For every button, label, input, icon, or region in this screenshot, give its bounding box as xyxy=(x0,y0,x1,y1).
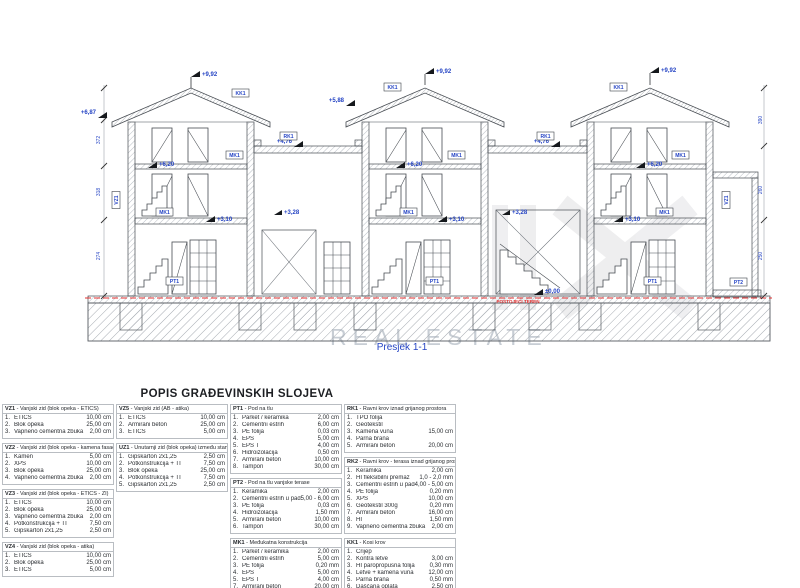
svg-text:+3,10: +3,10 xyxy=(625,217,641,223)
legend-row: 3.PE folija0,20 mm xyxy=(233,563,339,570)
tag-mk1-attic-1: MK1 xyxy=(226,151,243,159)
house-left xyxy=(112,88,270,296)
section-caption: Presjek 1-1 xyxy=(377,342,428,353)
tag-pt2: PT2 xyxy=(730,278,747,286)
tag-kk1-1: KK1 xyxy=(232,89,249,97)
legend-row: 6.Hidroizolacija0,50 cm xyxy=(233,450,339,457)
legend-section-header: VZ3 - Vanjski zid (blok opeka - ETICS - … xyxy=(3,490,113,499)
svg-text:KK1: KK1 xyxy=(613,85,623,91)
svg-text:PT1: PT1 xyxy=(430,279,439,285)
legend-section-pt1: PT1 - Pod na tlu1.Parket / keramika2,00 … xyxy=(230,404,342,474)
house-middle xyxy=(346,88,504,296)
legend-section-rows: 1.Keramika2,00 cm2.Cementni estrih u pad… xyxy=(231,488,341,533)
ground xyxy=(88,296,770,341)
legend-row: 5.EPS T4,00 cm xyxy=(233,443,339,450)
svg-text:MK1: MK1 xyxy=(159,210,170,216)
legend-section-mk1: MK1 - Međukatna konstrukcija1.Parket / k… xyxy=(230,538,342,588)
svg-text:+9,92: +9,92 xyxy=(661,68,677,74)
svg-text:VZ1: VZ1 xyxy=(114,195,120,204)
legend-section-uz1: UZ1 - Unutarnji zid (blok opeka) između … xyxy=(116,443,228,492)
elevation-ridge-left: +9,92 xyxy=(191,71,218,88)
legend-section-kk1: KK1 - Kosi krov1.Crijep2.Kontra letve3,0… xyxy=(344,538,456,588)
legend-section-rows: 1.Parket / keramika2,00 cm2.Cementni est… xyxy=(231,414,341,473)
legend-section-rk2: RK2 - Ravni krov - terasa iznad grijanog… xyxy=(344,457,456,534)
legend-row: 7.Armirani beton16,00 cm xyxy=(347,510,453,517)
tag-pt1-2: PT1 xyxy=(426,277,443,285)
svg-text:VZ1: VZ1 xyxy=(724,195,730,204)
drawing-sheet: REAL ESTATE xyxy=(0,0,800,588)
svg-text:260: 260 xyxy=(758,186,764,195)
elevation-eave-left: +6,87 xyxy=(81,110,107,118)
section-drawing: REAL ESTATE xyxy=(0,0,800,385)
legend-section-vz4: VZ4 - Vanjski zid (blok opeka - atika)1.… xyxy=(2,542,114,577)
svg-text:372: 372 xyxy=(96,136,102,145)
tag-vz1-right: VZ1 xyxy=(722,192,730,209)
tag-rk1-1: RK1 xyxy=(280,132,297,140)
legend-column-3: PT1 - Pod na tlu1.Parket / keramika2,00 … xyxy=(230,404,342,588)
legend-row: 2.Blok opeka25,00 cm xyxy=(5,422,111,429)
legend-row: 3.HI paropropusna folija0,30 mm xyxy=(347,563,453,570)
legend-row: 1.Keramika2,00 cm xyxy=(233,489,339,496)
tag-pt1-3: PT1 xyxy=(644,277,661,285)
legend-section-pt2: PT2 - Pod na tlu vanjske terase1.Keramik… xyxy=(230,478,342,534)
legend-row: 4.Hidroizolacija1,50 mm xyxy=(233,510,339,517)
legend-row: 4.Parna brana xyxy=(347,436,453,443)
legend-section-vz3: VZ3 - Vanjski zid (blok opeka - ETICS - … xyxy=(2,489,114,538)
legend-section-rows: 1.Parket / keramika2,00 cm2.Cementni est… xyxy=(231,548,341,588)
legend-section-header: KK1 - Kosi krov xyxy=(345,539,455,548)
legend-row: 2.Blok opeka25,00 cm xyxy=(5,560,111,567)
legend-row: 1.TPO folija xyxy=(347,415,453,422)
legend-row: 6.Tampon30,00 cm xyxy=(233,524,339,531)
legend-row: 7.Armirani beton20,00 cm xyxy=(233,584,339,588)
svg-text:MK1: MK1 xyxy=(229,153,240,159)
svg-text:+3,28: +3,28 xyxy=(512,210,528,216)
svg-text:MK1: MK1 xyxy=(451,153,462,159)
legend-section-rows: 1.TPO folija2.Geotekstil3.Kamena vuna15,… xyxy=(345,414,455,452)
svg-text:PT2: PT2 xyxy=(734,280,743,286)
legend-section-rows: 1.Keramika2,00 cm2.HI fleksibilni premaz… xyxy=(345,467,455,533)
legend-section-header: UZ1 - Unutarnji zid (blok opeka) između … xyxy=(117,444,227,453)
svg-text:KK1: KK1 xyxy=(235,91,245,97)
legend-section-rows: 1.ETICS10,00 cm2.Armirani beton25,00 cm3… xyxy=(117,414,227,438)
legend-row: 4.EPS5,00 cm xyxy=(233,436,339,443)
tag-kk1-3: KK1 xyxy=(610,83,627,91)
tag-pt1-1: PT1 xyxy=(166,277,183,285)
legend-row: 1.ETICS10,00 cm xyxy=(5,553,111,560)
legend-section-rows: 1.ETICS10,00 cm2.Blok opeka25,00 cm3.Vap… xyxy=(3,499,113,537)
legend-section-header: VZ1 - Vanjski zid (blok opeka - ETICS) xyxy=(3,405,113,414)
house-right xyxy=(571,88,729,296)
svg-text:+6,20: +6,20 xyxy=(647,162,663,168)
legend-row: 3.ETICS5,00 cm xyxy=(5,567,111,574)
legend-row: 2.Cementni estrih5,00 cm xyxy=(233,556,339,563)
legend-row: 8.HI1,50 mm xyxy=(347,517,453,524)
svg-text:RK1: RK1 xyxy=(540,134,550,140)
svg-text:+6,87: +6,87 xyxy=(81,110,97,116)
elevation-floor-2: +3,10 xyxy=(438,216,465,223)
connector-left xyxy=(254,140,362,294)
svg-text:250: 250 xyxy=(758,252,764,261)
legend-row: 1.Gipskarton 2x1,252,50 cm xyxy=(119,454,225,461)
svg-text:PT1: PT1 xyxy=(170,279,179,285)
svg-text:+9,92: +9,92 xyxy=(202,72,218,78)
legend-section-rows: 1.ETICS10,00 cm2.Blok opeka25,00 cm3.Vap… xyxy=(3,414,113,438)
legend-row: 8.Tampon30,00 cm xyxy=(233,464,339,471)
legend-row: 2.Potkonstrukcija + TI7,50 cm xyxy=(119,461,225,468)
tag-mk1-mid-1: MK1 xyxy=(156,208,173,216)
dimension-chain-right: 390 260 250 xyxy=(758,85,767,299)
legend-row: 3.Blok opeka25,00 cm xyxy=(119,468,225,475)
legend-row: 1.Kamen5,00 cm xyxy=(5,454,111,461)
svg-text:+6,20: +6,20 xyxy=(407,162,423,168)
legend-row: 5.EPS T4,00 cm xyxy=(233,577,339,584)
legend-row: 1.Keramika2,00 cm xyxy=(347,468,453,475)
legend-section-vz5: VZ5 - Vanjski zid (AB - atika)1.ETICS10,… xyxy=(116,404,228,439)
legend-row: 5.Parna brana0,50 mm xyxy=(347,577,453,584)
svg-text:KK1: KK1 xyxy=(387,85,397,91)
legend-row: 3.Vapneno cementna žbuka2,00 cm xyxy=(5,429,111,436)
legend-row: 5.Gipskarton 2x1,252,50 cm xyxy=(119,482,225,489)
legend-section-header: VZ5 - Vanjski zid (AB - atika) xyxy=(117,405,227,414)
legend-row: 3.ETICS5,00 cm xyxy=(119,429,225,436)
svg-text:390: 390 xyxy=(758,116,764,125)
legend-row: 2.Blok opeka25,00 cm xyxy=(5,507,111,514)
legend-section-rows: 1.Kamen5,00 cm2.XPS10,00 cm3.Blok opeka2… xyxy=(3,453,113,484)
legend-row: 5.Armirani beton20,00 cm xyxy=(347,443,453,450)
legend-section-header: PT2 - Pod na tlu vanjske terase xyxy=(231,479,341,488)
legend-row: 3.Vapneno cementna žbuka2,00 cm xyxy=(5,514,111,521)
legend-column-4: RK1 - Ravni krov iznad grijanog prostora… xyxy=(344,404,456,588)
tag-kk1-2: KK1 xyxy=(384,83,401,91)
legend-row: 4.EPS5,00 cm xyxy=(233,570,339,577)
legend-row: 4.Potkonstrukcija + TI7,50 cm xyxy=(119,475,225,482)
legend-row: 6.Daščana oplata2,50 cm xyxy=(347,584,453,588)
legend-row: 2.Kontra letve3,00 cm xyxy=(347,556,453,563)
svg-text:+3,10: +3,10 xyxy=(449,217,465,223)
svg-text:318: 318 xyxy=(96,188,102,197)
legend-panel: POPIS GRAĐEVINSKIH SLOJEVA VZ1 - Vanjski… xyxy=(0,386,474,588)
legend-row: 5.Armirani beton10,00 cm xyxy=(233,517,339,524)
svg-text:+9,92: +9,92 xyxy=(436,69,452,75)
legend-row: 1.Parket / keramika2,00 cm xyxy=(233,549,339,556)
legend-row: 7.Armirani beton10,00 cm xyxy=(233,457,339,464)
legend-row: 5.XPS10,00 cm xyxy=(347,496,453,503)
legend-columns: VZ1 - Vanjski zid (blok opeka - ETICS)1.… xyxy=(0,404,474,588)
legend-section-rk1: RK1 - Ravni krov iznad grijanog prostora… xyxy=(344,404,456,453)
legend-row: 9.Vapneno cementna žbuka2,00 cm xyxy=(347,524,453,531)
legend-row: 1.ETICS10,00 cm xyxy=(119,415,225,422)
legend-section-header: RK2 - Ravni krov - terasa iznad grijanog… xyxy=(345,458,455,467)
tag-vz1-left: VZ1 xyxy=(112,192,120,209)
legend-section-rows: 1.ETICS10,00 cm2.Blok opeka25,00 cm3.ETI… xyxy=(3,552,113,576)
elevation-floor-1: +3,10 xyxy=(206,216,233,223)
legend-section-rows: 1.Crijep2.Kontra letve3,00 cm3.HI paropr… xyxy=(345,548,455,588)
legend-row: 4.PE folija0,20 mm xyxy=(347,489,453,496)
legend-row: 2.Armirani beton25,00 cm xyxy=(119,422,225,429)
legend-column-1: VZ1 - Vanjski zid (blok opeka - ETICS)1.… xyxy=(2,404,114,588)
elevation-ridge-right: +9,92 xyxy=(650,67,677,85)
legend-row: 6.Geotekstil 300g0,20 mm xyxy=(347,503,453,510)
legend-section-vz1: VZ1 - Vanjski zid (blok opeka - ETICS)1.… xyxy=(2,404,114,439)
svg-text:±0,00: ±0,00 xyxy=(545,289,561,295)
legend-section-vz2: VZ2 - Vanjski zid (blok opeka - kamena f… xyxy=(2,443,114,485)
legend-section-header: RK1 - Ravni krov iznad grijanog prostora xyxy=(345,405,455,414)
legend-column-2: VZ5 - Vanjski zid (AB - atika)1.ETICS10,… xyxy=(116,404,228,588)
svg-text:PT1: PT1 xyxy=(648,279,657,285)
svg-text:+3,28: +3,28 xyxy=(284,210,300,216)
svg-text:RK1: RK1 xyxy=(283,134,293,140)
legend-section-rows: 1.Gipskarton 2x1,252,50 cm2.Potkonstrukc… xyxy=(117,453,227,491)
legend-row: 3.PE folija0,03 cm xyxy=(233,503,339,510)
legend-title: POPIS GRAĐEVINSKIH SLOJEVA xyxy=(0,388,474,400)
elevation-landing-1: +3,28 xyxy=(274,210,300,216)
legend-row: 4.Vapneno cementna žbuka2,00 cm xyxy=(5,475,111,482)
legend-row: 5.Gipskarton 2x1,252,50 cm xyxy=(5,528,111,535)
legend-section-header: VZ4 - Vanjski zid (blok opeka - atika) xyxy=(3,543,113,552)
tag-mk1-attic-2: MK1 xyxy=(448,151,465,159)
elevation-ridge-middle: +9,92 xyxy=(425,68,452,85)
tag-rk1-2: RK1 xyxy=(537,132,554,140)
tag-mk1-mid-2: MK1 xyxy=(400,208,417,216)
legend-row: 3.Kamena vuna15,00 cm xyxy=(347,429,453,436)
legend-row: 1.Parket / keramika2,00 cm xyxy=(233,415,339,422)
svg-text:+5,88: +5,88 xyxy=(329,98,345,104)
legend-row: 3.Cementni estrih u padu4,00 - 5,00 cm xyxy=(347,482,453,489)
terrain-note: POSTOJEĆI TEREN xyxy=(496,297,540,304)
legend-row: 2.Cementni estrih6,00 cm xyxy=(233,422,339,429)
legend-row: 4.Letve + kamena vuna12,00 cm xyxy=(347,570,453,577)
elevation-eave-middle: +5,88 xyxy=(329,98,355,106)
legend-section-header: MK1 - Međukatna konstrukcija xyxy=(231,539,341,548)
legend-section-header: PT1 - Pod na tlu xyxy=(231,405,341,414)
legend-section-header: VZ2 - Vanjski zid (blok opeka - kamena f… xyxy=(3,444,113,453)
tag-mk1-mid-3: MK1 xyxy=(656,208,673,216)
legend-row: 4.Potkonstrukcija + TI7,50 cm xyxy=(5,521,111,528)
legend-row: 1.Crijep xyxy=(347,549,453,556)
tag-mk1-attic-3: MK1 xyxy=(672,151,689,159)
legend-row: 2.XPS10,00 cm xyxy=(5,461,111,468)
svg-text:+6,20: +6,20 xyxy=(159,162,175,168)
elevation-floor-3: +3,10 xyxy=(614,216,641,223)
legend-row: 3.Blok opeka25,00 cm xyxy=(5,468,111,475)
svg-text:MK1: MK1 xyxy=(675,153,686,159)
svg-text:MK1: MK1 xyxy=(659,210,670,216)
svg-text:MK1: MK1 xyxy=(403,210,414,216)
legend-row: 2.HI fleksibilni premaz1,0 - 2,0 mm xyxy=(347,475,453,482)
svg-text:+3,10: +3,10 xyxy=(217,217,233,223)
svg-text:274: 274 xyxy=(96,252,102,261)
legend-row: 2.Geotekstil xyxy=(347,422,453,429)
legend-row: 1.ETICS10,00 cm xyxy=(5,500,111,507)
legend-row: 3.PE folija0,03 cm xyxy=(233,429,339,436)
legend-row: 1.ETICS10,00 cm xyxy=(5,415,111,422)
legend-row: 2.Cementni estrih u padu5,00 - 6,00 cm xyxy=(233,496,339,503)
